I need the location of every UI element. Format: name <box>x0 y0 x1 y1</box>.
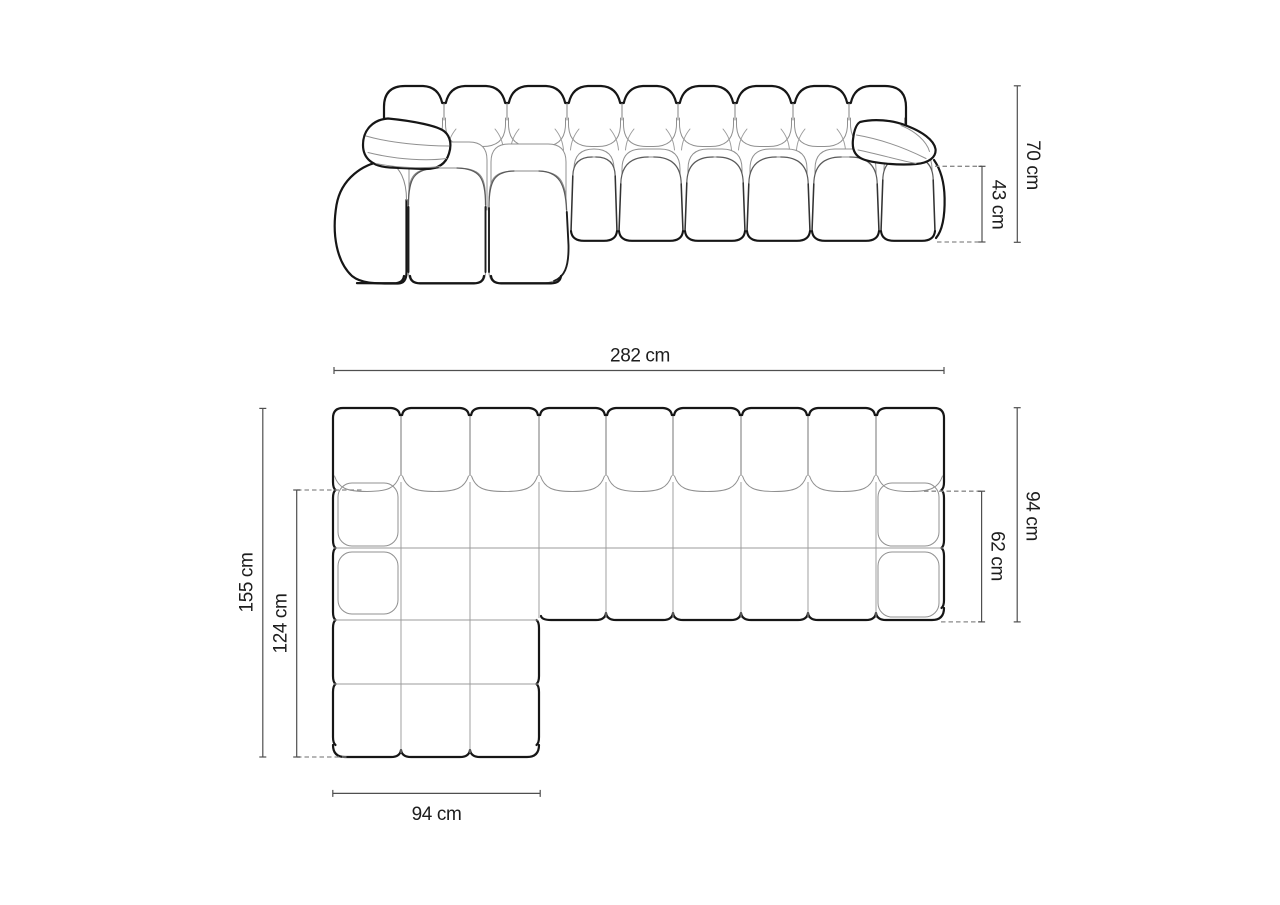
svg-text:43 cm: 43 cm <box>988 180 1009 230</box>
svg-text:94 cm: 94 cm <box>412 804 462 825</box>
svg-text:124 cm: 124 cm <box>271 594 292 654</box>
svg-text:94 cm: 94 cm <box>1021 491 1042 541</box>
svg-text:62 cm: 62 cm <box>986 531 1007 581</box>
svg-text:155 cm: 155 cm <box>237 553 258 613</box>
svg-text:70 cm: 70 cm <box>1022 140 1043 190</box>
svg-text:282 cm: 282 cm <box>610 346 670 367</box>
